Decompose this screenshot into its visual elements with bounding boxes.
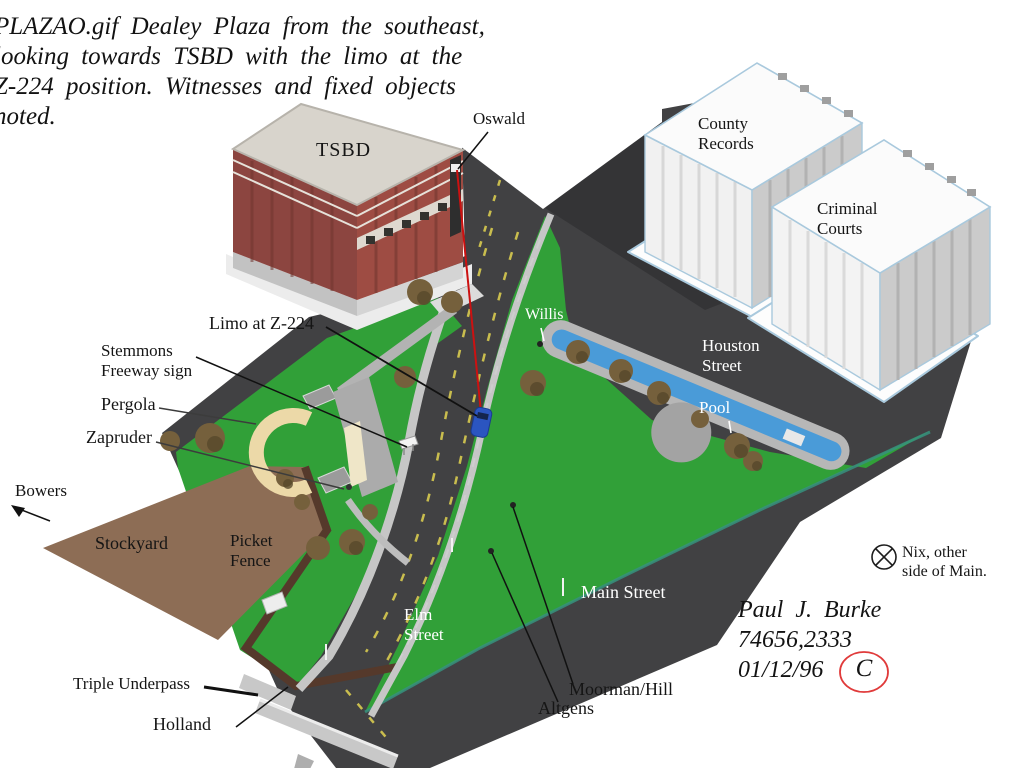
label-main-street: Main Street <box>581 583 665 602</box>
label-holland: Holland <box>153 715 211 734</box>
label-bowers: Bowers <box>15 482 67 500</box>
label-zapruder: Zapruder <box>86 428 152 447</box>
label-houston-street: Houston Street <box>702 336 760 376</box>
caption-line: PLAZAO.gif Dealey Plaza from the southea… <box>0 12 485 42</box>
label-elm-street: Elm Street <box>404 605 444 645</box>
dealey-plaza-diagram: PLAZAO.gif Dealey Plaza from the southea… <box>0 0 1024 768</box>
label-county-records: County Records <box>698 114 754 154</box>
label-stemmons-sign: Stemmons Freeway sign <box>101 341 192 381</box>
label-nix: Nix, other side of Main. <box>902 543 987 581</box>
label-pool: Pool <box>699 399 730 417</box>
copyright-letter: C <box>846 655 882 683</box>
nix-position-icon <box>872 545 896 569</box>
signature-date: 01/12/96 <box>738 657 823 684</box>
label-altgens: Altgens <box>538 699 594 718</box>
label-willis: Willis <box>525 306 563 323</box>
label-moorman-hill: Moorman/Hill <box>569 680 673 699</box>
label-oswald: Oswald <box>473 110 525 128</box>
label-triple-underpass: Triple Underpass <box>73 675 190 693</box>
signature-compuserve-id: 74656,2333 <box>738 627 852 654</box>
signature-name: Paul J. Burke <box>738 597 881 624</box>
label-stockyard: Stockyard <box>95 534 168 553</box>
label-pergola: Pergola <box>101 395 156 414</box>
label-criminal-courts: Criminal Courts <box>817 199 877 239</box>
caption: PLAZAO.gif Dealey Plaza from the southea… <box>0 12 485 132</box>
label-picket-fence: Picket Fence <box>230 531 273 571</box>
zapruder-figure <box>346 484 352 490</box>
label-tsbd: TSBD <box>316 140 371 162</box>
bowers-arrowhead <box>11 505 25 517</box>
caption-line: looking towards TSBD with the limo at th… <box>0 42 485 72</box>
altgens-figure <box>488 548 494 554</box>
willis-figure <box>537 341 543 347</box>
caption-line: Z-224 position. Witnesses and fixed obje… <box>0 72 485 102</box>
caption-line: noted. <box>0 102 485 132</box>
label-limo-z224: Limo at Z-224 <box>209 314 314 333</box>
